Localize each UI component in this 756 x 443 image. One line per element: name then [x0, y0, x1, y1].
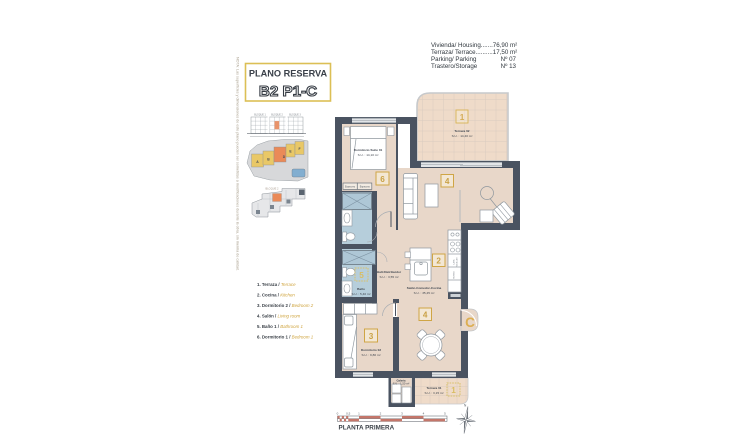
svg-text:Terraza/ Terrace..........17,5: Terraza/ Terrace..........17,50 m²	[431, 49, 517, 56]
svg-text:BLOQUE 1: BLOQUE 1	[254, 115, 266, 117]
svg-text:0,5: 0,5	[346, 412, 351, 416]
svg-text:BLOQUE 2: BLOQUE 2	[266, 187, 280, 191]
svg-text:C: C	[465, 315, 475, 330]
svg-text:F: F	[298, 147, 300, 151]
svg-text:Especero: Especero	[360, 186, 371, 189]
svg-text:Baño: Baño	[357, 287, 365, 291]
svg-text:Vivienda/ Housing.......76,90: Vivienda/ Housing.......76,90 m²	[431, 42, 517, 49]
svg-text:1: 1	[460, 113, 465, 122]
svg-text:2. Cocina / Kitchen: 2. Cocina / Kitchen	[257, 293, 295, 298]
svg-text:Terraza 02: Terraza 02	[454, 129, 469, 133]
svg-text:S.U. : 9,80 m²: S.U. : 9,80 m²	[361, 353, 380, 357]
svg-text:4: 4	[423, 311, 428, 320]
svg-text:1: 1	[451, 386, 456, 395]
svg-text:3. Dormitorio 2 / Bedroom 2: 3. Dormitorio 2 / Bedroom 2	[257, 303, 314, 308]
svg-text:6: 6	[380, 175, 385, 184]
svg-text:BLOQUE 3: BLOQUE 3	[289, 115, 301, 117]
svg-text:VAJILLAS: VAJILLAS	[456, 257, 459, 267]
svg-text:S.U. : 5,40 m²: S.U. : 5,40 m²	[351, 292, 370, 296]
svg-text:LAVA: LAVA	[453, 259, 456, 265]
svg-text:5. Baño 1 / Bathroom 1: 5. Baño 1 / Bathroom 1	[257, 324, 303, 329]
svg-text:4. Salón / Living room: 4. Salón / Living room	[257, 314, 301, 319]
svg-text:1. Terraza / Terrace: 1. Terraza / Terrace	[257, 282, 296, 287]
svg-text:Hall-Distribuidor: Hall-Distribuidor	[377, 270, 402, 274]
svg-text:HORNO: HORNO	[454, 271, 456, 279]
svg-text:S.U. : 14,40 m²: S.U. : 14,40 m²	[452, 134, 473, 138]
svg-text:PLANTA PRIMERA: PLANTA PRIMERA	[339, 425, 395, 432]
svg-text:Trastero/Storage: Trastero/Storage	[431, 63, 478, 70]
svg-text:Nº 13: Nº 13	[501, 63, 517, 70]
svg-text:S.U. : 14,10 m²: S.U. : 14,10 m²	[358, 153, 379, 157]
svg-text:6. Dormitorio 1 / Bedroom 1: 6. Dormitorio 1 / Bedroom 1	[257, 335, 314, 340]
svg-text:S.U. : 3,55 m²: S.U. : 3,55 m²	[379, 275, 398, 279]
svg-text:S.U. : 1,50 m²: S.U. : 1,50 m²	[393, 382, 410, 386]
svg-text:B2 P1-C: B2 P1-C	[259, 83, 317, 100]
svg-text:Nº 07: Nº 07	[501, 56, 517, 63]
svg-text:Parking/ Parking: Parking/ Parking	[431, 56, 477, 63]
svg-text:BLOQUE 2: BLOQUE 2	[271, 115, 283, 117]
svg-text:Terraza 01: Terraza 01	[426, 386, 441, 390]
svg-text:NOTA: Las superficies y dimens: NOTA: Las superficies y dimensiones de e…	[236, 57, 240, 271]
svg-text:4: 4	[445, 177, 450, 186]
svg-text:2: 2	[436, 257, 441, 266]
svg-text:Dormitorio 02: Dormitorio 02	[361, 348, 381, 352]
svg-text:Dormitorio Suite 01: Dormitorio Suite 01	[354, 148, 383, 152]
svg-text:S.U. : 3,15 m²: S.U. : 3,15 m²	[424, 391, 443, 395]
svg-text:3: 3	[369, 332, 374, 341]
svg-text:Especero: Especero	[345, 186, 356, 189]
svg-text:Salón-Comedor-Cocina: Salón-Comedor-Cocina	[407, 286, 442, 290]
svg-text:S.U. : 35,45 m²: S.U. : 35,45 m²	[414, 291, 435, 295]
svg-text:5: 5	[359, 271, 364, 280]
svg-text:PLANO RESERVA: PLANO RESERVA	[249, 69, 328, 79]
